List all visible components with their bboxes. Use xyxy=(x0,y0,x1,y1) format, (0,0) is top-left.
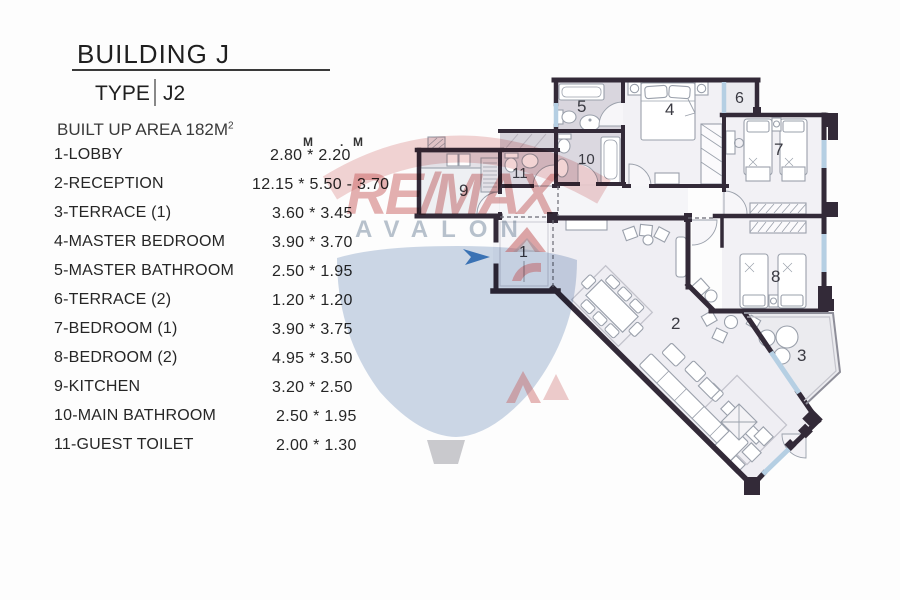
svg-text:2: 2 xyxy=(671,314,680,333)
svg-text:6: 6 xyxy=(735,90,744,107)
svg-text:3: 3 xyxy=(797,346,806,365)
svg-text:5: 5 xyxy=(577,97,586,116)
svg-text:7: 7 xyxy=(774,140,783,159)
svg-text:4: 4 xyxy=(665,100,674,119)
svg-text:8: 8 xyxy=(771,267,780,286)
svg-text:AVALON: AVALON xyxy=(355,216,531,243)
